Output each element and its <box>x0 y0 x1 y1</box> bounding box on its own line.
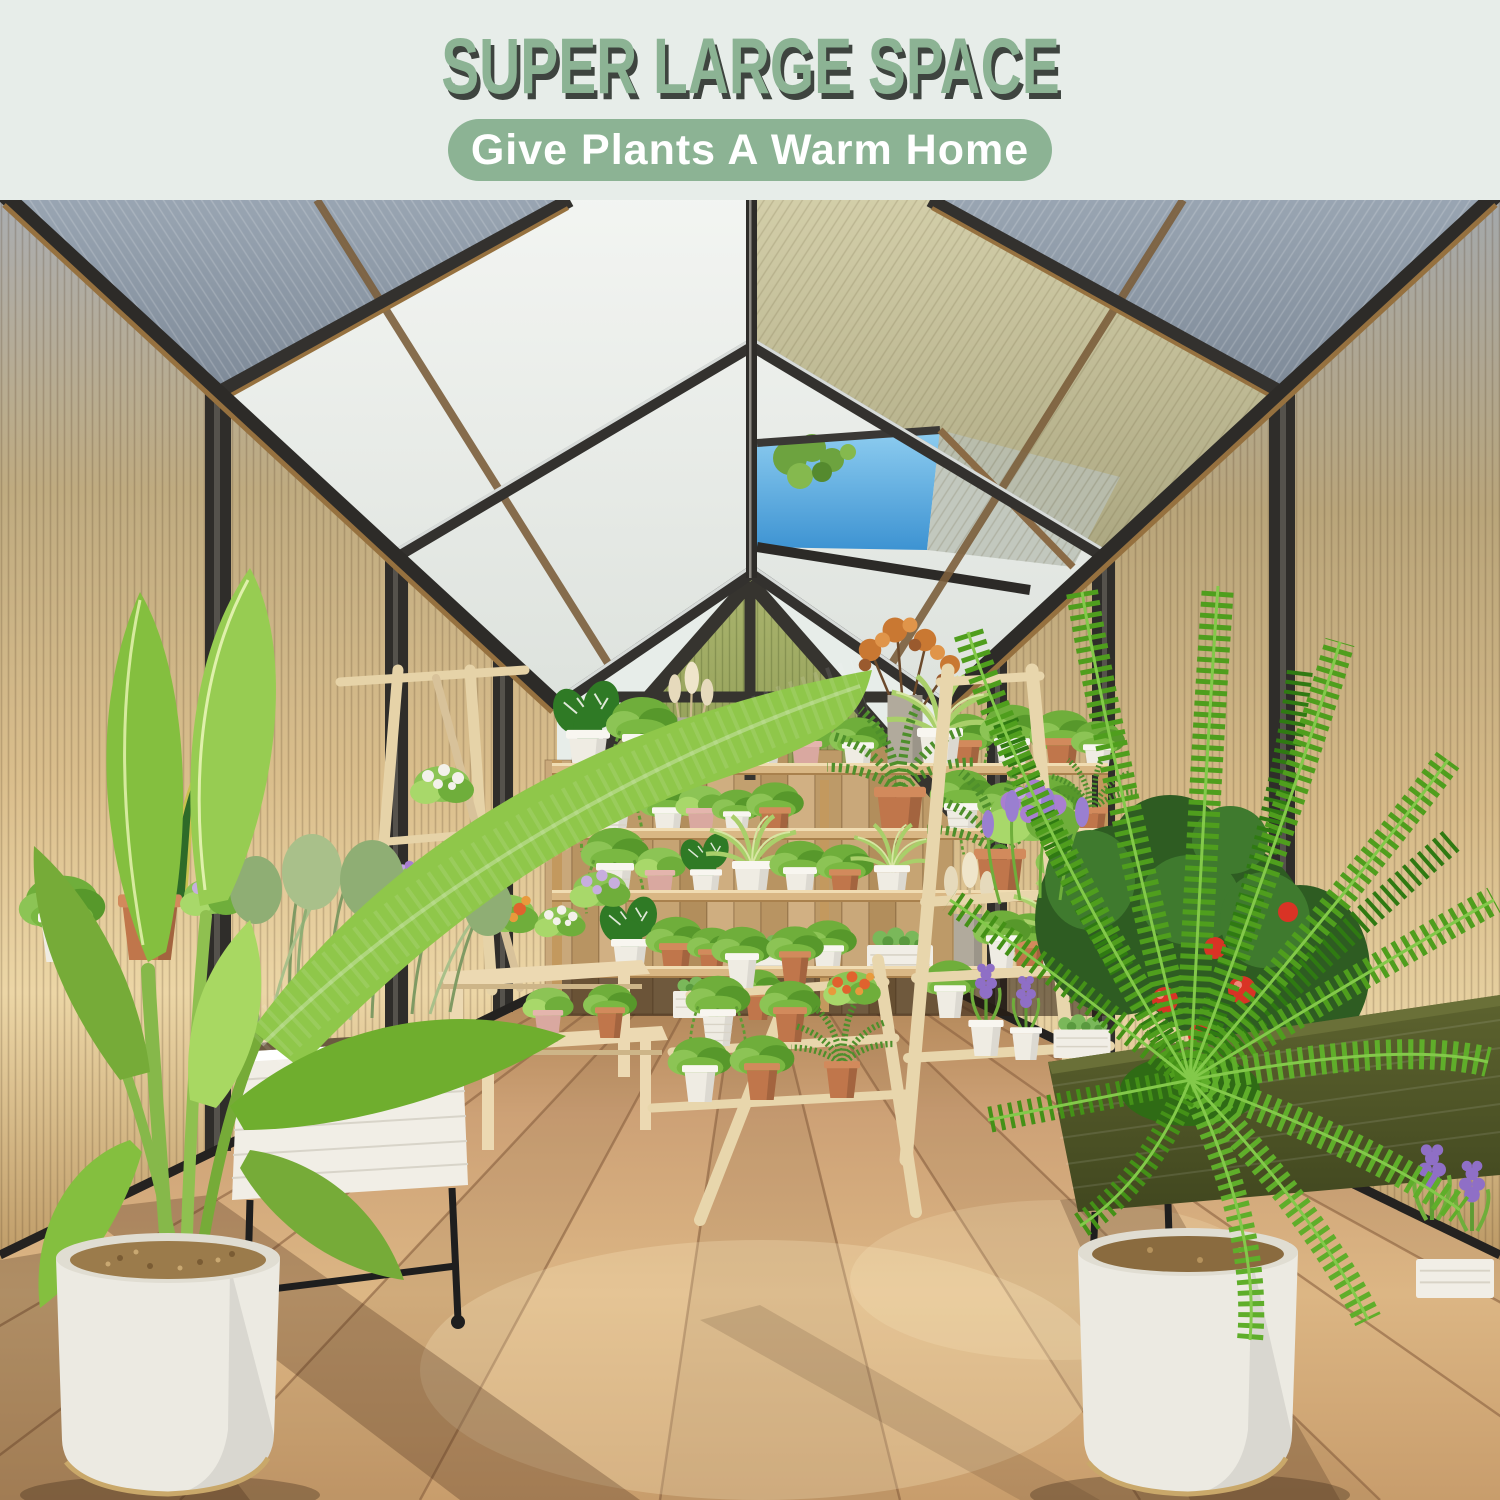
banana-pot <box>56 1233 280 1496</box>
product-image: SUPER LARGE SPACE Give Plants A Warm Hom… <box>0 0 1500 1500</box>
tagline-text: Give Plants A Warm Home <box>471 126 1029 175</box>
header: SUPER LARGE SPACE Give Plants A Warm Hom… <box>0 0 1500 200</box>
greenhouse-photo <box>0 200 1500 1500</box>
tagline-banner: Give Plants A Warm Home <box>448 119 1052 181</box>
page-title: SUPER LARGE SPACE <box>441 26 1059 105</box>
banana-pot-soil <box>70 1241 266 1279</box>
palm-pot <box>1078 1228 1298 1496</box>
